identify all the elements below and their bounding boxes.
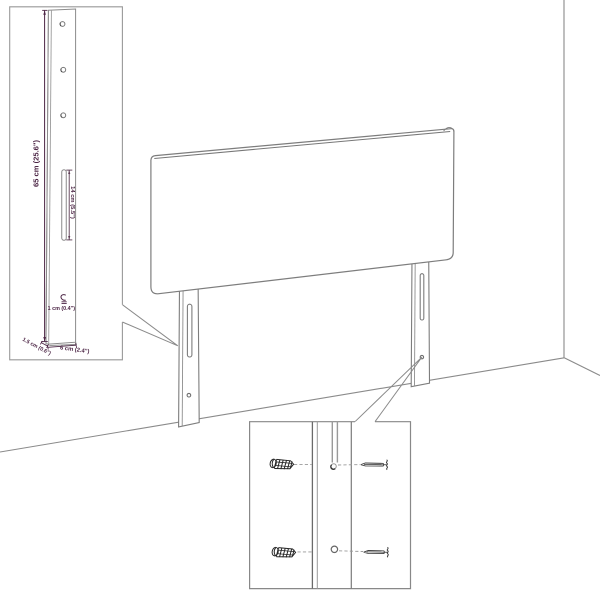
- svg-text:65 cm (25.6"): 65 cm (25.6"): [31, 139, 40, 187]
- svg-text:14 cm (5.5"): 14 cm (5.5"): [69, 186, 75, 219]
- svg-text:1 cm (0.4"): 1 cm (0.4"): [48, 306, 76, 312]
